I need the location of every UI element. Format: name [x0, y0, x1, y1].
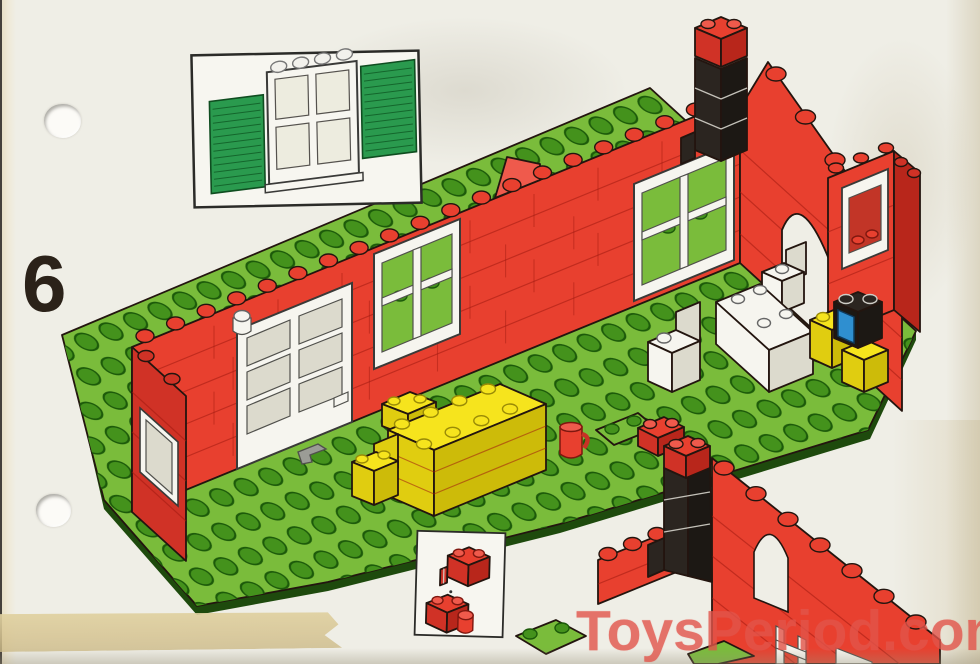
punch-hole-top	[44, 104, 81, 138]
black-chimney	[681, 17, 747, 164]
brick-detail-inset	[415, 531, 506, 637]
instruction-illustrations	[0, 0, 980, 664]
east-corner-post	[894, 151, 920, 332]
tv-stand-stud	[817, 313, 830, 322]
chair-stud	[657, 333, 671, 343]
step-number: 6	[22, 244, 67, 324]
scanned-instruction-page: { "page": { "step_number": "6", "waterma…	[0, 0, 980, 664]
page-left-edge	[0, 0, 16, 664]
tape-strip	[0, 610, 342, 652]
chair-stud	[776, 265, 789, 274]
door-post-stud	[234, 311, 250, 322]
page-right-edge	[946, 0, 980, 664]
watermark-text: ToysPeriod.com	[576, 598, 980, 664]
punch-hole-bottom	[36, 494, 71, 527]
window-detail-inset	[191, 40, 421, 207]
